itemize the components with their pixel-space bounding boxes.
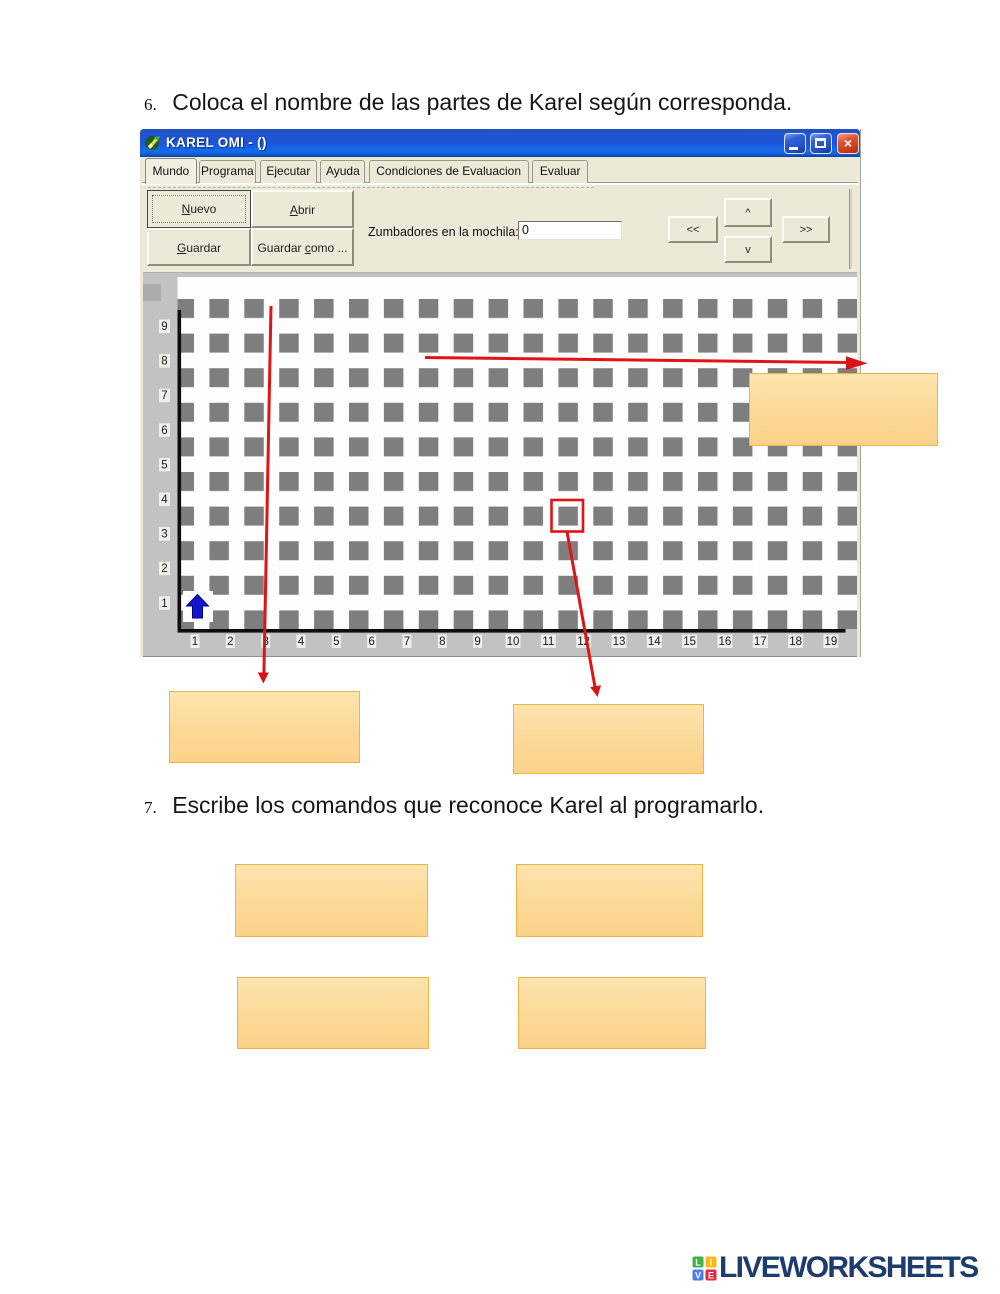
svg-text:10: 10 <box>507 636 520 648</box>
svg-text:9: 9 <box>474 636 480 648</box>
svg-text:6: 6 <box>368 636 374 648</box>
svg-text:13: 13 <box>613 636 626 648</box>
svg-text:19: 19 <box>825 636 838 648</box>
svg-text:11: 11 <box>542 636 554 648</box>
svg-text:3: 3 <box>262 636 268 648</box>
svg-text:4: 4 <box>161 494 168 506</box>
svg-text:7: 7 <box>161 390 167 402</box>
svg-text:9: 9 <box>161 321 167 333</box>
svg-text:V: V <box>695 1271 701 1281</box>
svg-text:8: 8 <box>161 356 167 368</box>
svg-text:6: 6 <box>161 425 167 437</box>
svg-text:I: I <box>710 1258 713 1268</box>
svg-text:14: 14 <box>648 636 661 648</box>
svg-text:3: 3 <box>161 529 167 541</box>
svg-text:16: 16 <box>719 636 732 648</box>
svg-text:5: 5 <box>333 636 339 648</box>
svg-text:18: 18 <box>789 636 802 648</box>
svg-text:1: 1 <box>192 636 198 648</box>
svg-text:15: 15 <box>683 636 696 648</box>
svg-text:12: 12 <box>577 636 590 648</box>
svg-text:L: L <box>695 1258 701 1268</box>
svg-text:4: 4 <box>298 636 305 648</box>
svg-text:E: E <box>708 1271 714 1281</box>
svg-text:2: 2 <box>227 636 233 648</box>
svg-text:2: 2 <box>161 563 167 575</box>
svg-text:1: 1 <box>161 598 167 610</box>
svg-text:5: 5 <box>161 459 167 471</box>
svg-text:17: 17 <box>754 636 767 648</box>
svg-text:8: 8 <box>439 636 445 648</box>
svg-text:7: 7 <box>404 636 410 648</box>
